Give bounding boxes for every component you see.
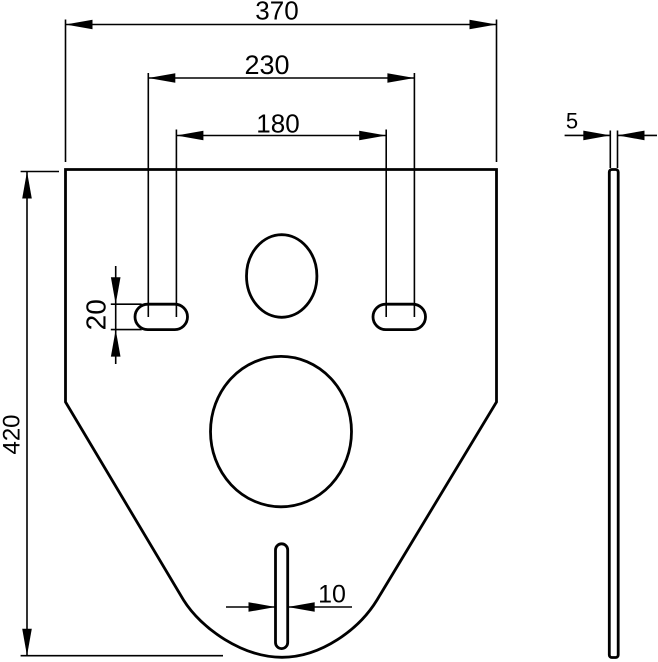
svg-text:180: 180	[256, 109, 299, 139]
svg-text:20: 20	[81, 299, 112, 330]
svg-text:230: 230	[244, 50, 289, 80]
svg-text:370: 370	[255, 0, 298, 26]
svg-text:5: 5	[566, 109, 578, 134]
svg-text:10: 10	[318, 581, 346, 609]
svg-text:420: 420	[0, 414, 26, 454]
